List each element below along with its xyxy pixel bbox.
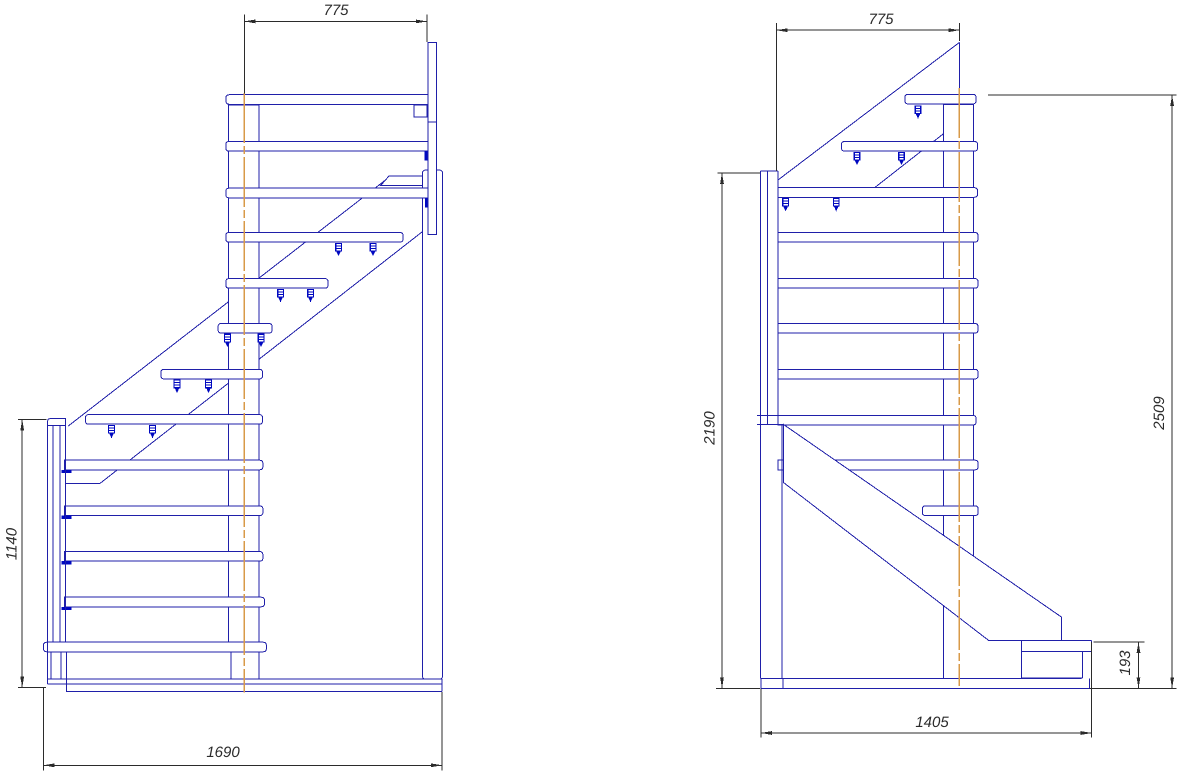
svg-text:775: 775: [868, 11, 894, 28]
svg-text:1140: 1140: [4, 527, 21, 560]
svg-text:1405: 1405: [915, 714, 949, 731]
svg-text:2190: 2190: [702, 411, 719, 446]
svg-text:775: 775: [323, 2, 349, 19]
svg-text:193: 193: [1117, 650, 1134, 676]
svg-text:2509: 2509: [1151, 396, 1168, 431]
svg-text:1690: 1690: [206, 744, 240, 761]
